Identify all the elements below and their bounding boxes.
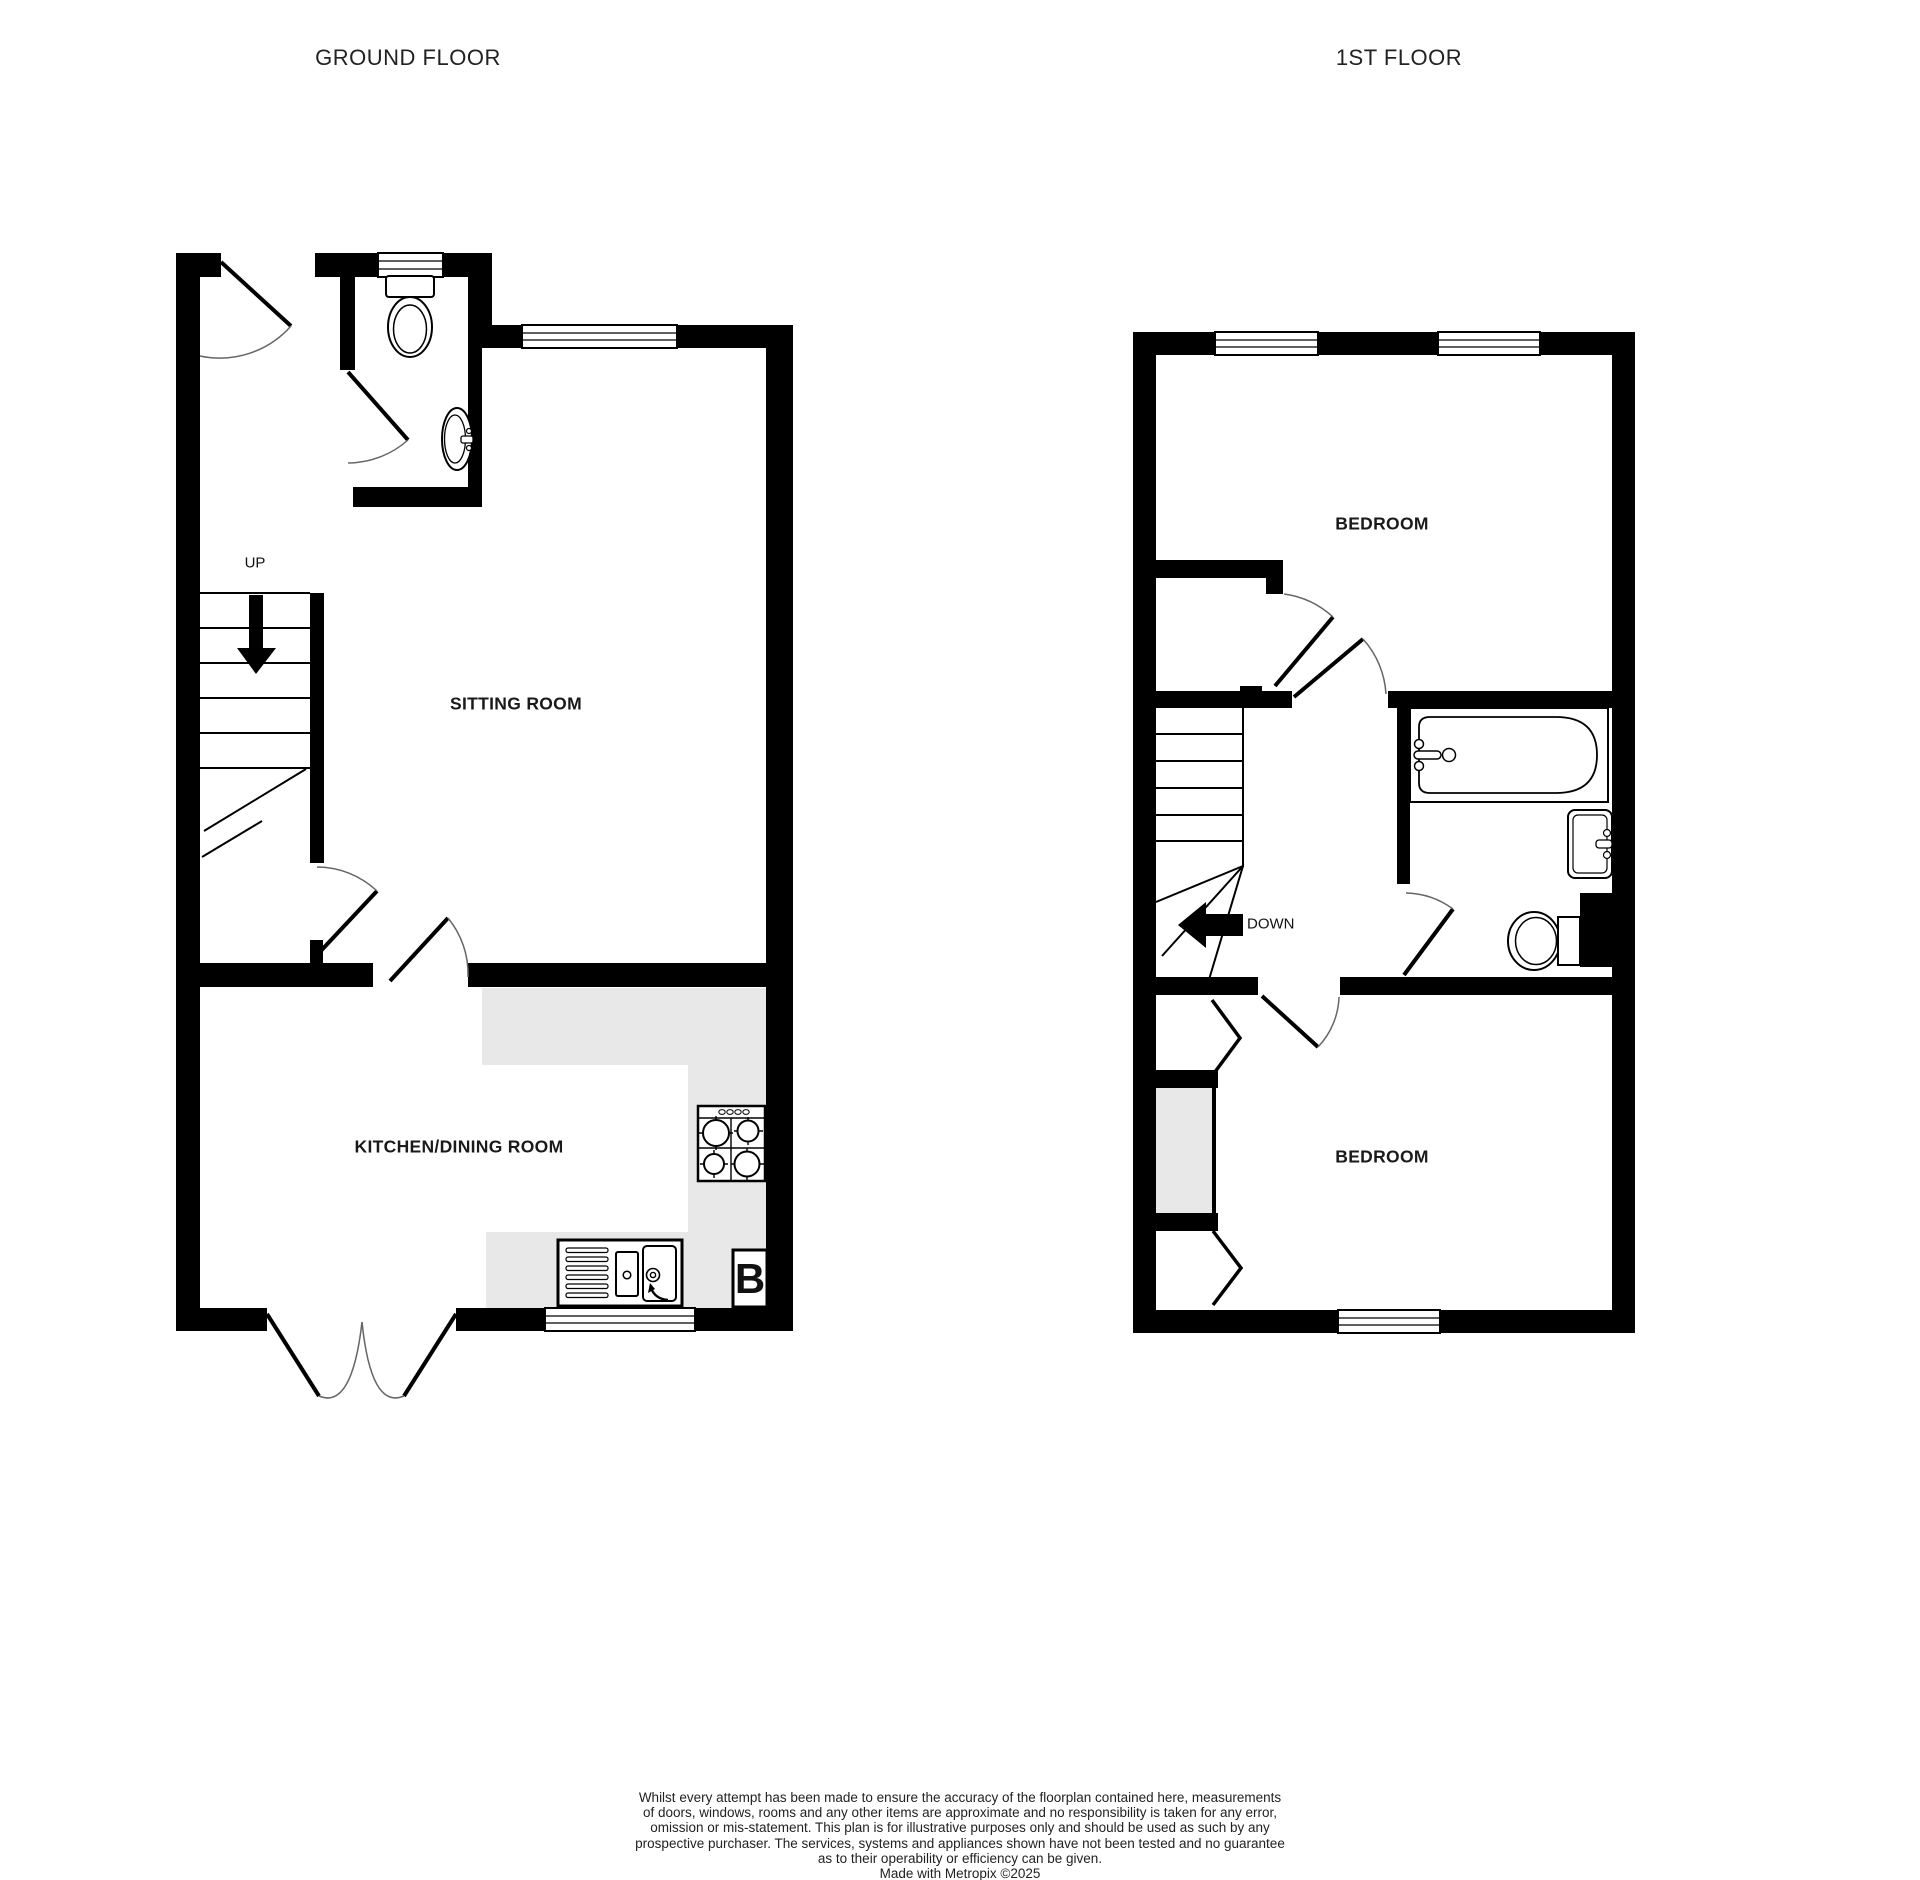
ground-floor-title: GROUND FLOOR	[315, 45, 501, 71]
kitchen-door-swing	[390, 918, 468, 981]
down-label: DOWN	[1247, 916, 1295, 933]
staircase-down	[1156, 708, 1243, 993]
disclaimer-line: of doors, windows, rooms and any other i…	[580, 1805, 1340, 1820]
first-floor-title: 1ST FLOOR	[1336, 45, 1462, 71]
floorplan-page: GROUND FLOOR 1ST FLOOR SITTING ROOM KITC…	[0, 0, 1920, 1880]
bedroom2-window	[1338, 1310, 1440, 1333]
disclaimer: Whilst every attempt has been made to en…	[580, 1790, 1340, 1880]
disclaimer-line: omission or mis-statement. This plan is …	[580, 1820, 1340, 1835]
bedroom1-label: BEDROOM	[1335, 514, 1429, 535]
cupboard-fill	[1156, 1088, 1212, 1213]
disclaimer-line: prospective purchaser. The services, sys…	[580, 1836, 1340, 1851]
bedroom2-label: BEDROOM	[1335, 1147, 1429, 1168]
toilet-icon	[386, 276, 434, 357]
first-floor-plan	[1110, 320, 1670, 1380]
bedroom1-window-left	[1215, 332, 1318, 355]
kitchen-sink-icon	[558, 1240, 682, 1306]
toilet-icon	[1508, 912, 1580, 970]
hob-icon	[698, 1106, 765, 1181]
bedroom2-door-swing	[1262, 996, 1339, 1047]
boiler-label: B	[735, 1255, 765, 1303]
sitting-room-window	[522, 325, 677, 348]
down-arrow-icon	[1178, 902, 1243, 948]
patio-double-doors	[267, 1314, 456, 1398]
bedroom1-window-right	[1438, 332, 1540, 355]
kitchen-dining-room-label: KITCHEN/DINING ROOM	[355, 1137, 564, 1158]
sitting-room-door-swing	[317, 867, 377, 955]
disclaimer-line: as to their operability or efficiency ca…	[580, 1851, 1340, 1866]
cupboard-folding-doors	[1212, 1000, 1241, 1305]
up-label: UP	[245, 555, 266, 572]
bathroom-basin-icon	[1568, 810, 1612, 878]
bathtub-icon	[1410, 708, 1608, 802]
disclaimer-line: Whilst every attempt has been made to en…	[580, 1790, 1340, 1805]
sitting-room-label: SITTING ROOM	[450, 694, 582, 715]
disclaimer-credit: Made with Metropix ©2025	[580, 1866, 1340, 1880]
bathroom-door-swing	[1404, 893, 1453, 975]
wc-basin-icon	[442, 408, 473, 470]
wc-door-swing	[348, 372, 408, 463]
ground-floor-plan	[160, 240, 820, 1470]
kitchen-window	[545, 1308, 695, 1331]
wc-window	[378, 253, 443, 277]
